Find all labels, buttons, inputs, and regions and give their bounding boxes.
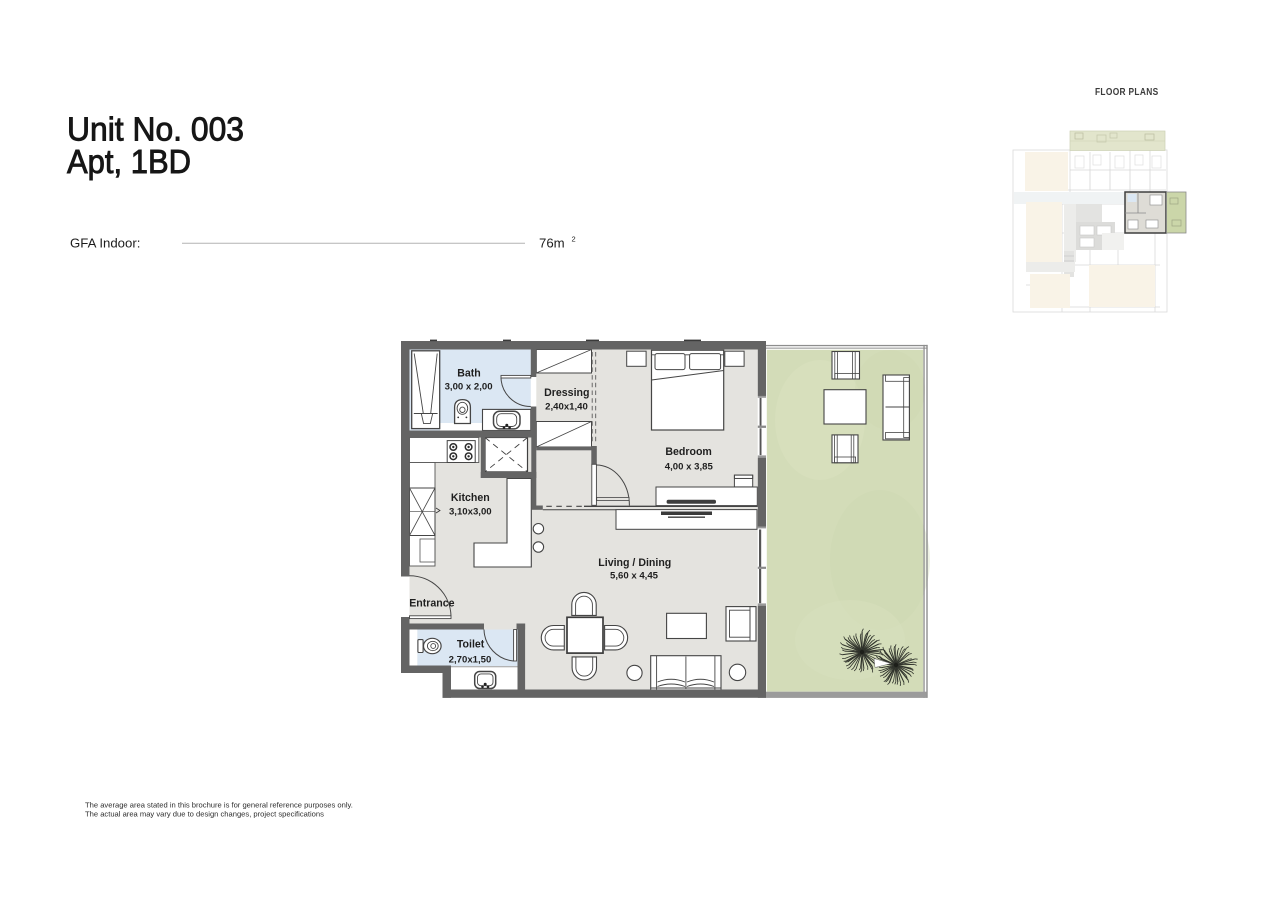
svg-text:Bath: Bath (457, 367, 481, 379)
svg-text:Unit No. 003: Unit No. 003 (67, 111, 244, 148)
svg-text:2,40x1,40: 2,40x1,40 (545, 402, 588, 413)
svg-text:The actual area may vary due t: The actual area may vary due to design c… (85, 810, 324, 819)
svg-text:Bedroom: Bedroom (665, 446, 712, 458)
svg-text:Apt, 1BD: Apt, 1BD (67, 143, 191, 180)
svg-text:2,70x1,50: 2,70x1,50 (449, 655, 492, 666)
svg-text:GFA Indoor:: GFA Indoor: (70, 236, 140, 251)
svg-text:2: 2 (572, 235, 576, 244)
svg-text:Entrance: Entrance (409, 597, 454, 609)
svg-text:3,10x3,00: 3,10x3,00 (449, 507, 492, 518)
svg-text:The average area stated in thi: The average area stated in this brochure… (85, 801, 353, 810)
svg-text:Kitchen: Kitchen (451, 492, 490, 504)
svg-text:5,60 x 4,45: 5,60 x 4,45 (610, 571, 659, 582)
svg-text:Toilet: Toilet (457, 638, 485, 650)
svg-text:Dressing: Dressing (544, 387, 589, 399)
svg-text:FLOOR PLANS: FLOOR PLANS (1095, 87, 1159, 98)
svg-text:Living / Dining: Living / Dining (598, 557, 671, 569)
svg-text:76m: 76m (539, 236, 565, 251)
svg-text:4,00 x 3,85: 4,00 x 3,85 (665, 461, 714, 472)
svg-text:3,00 x 2,00: 3,00 x 2,00 (445, 381, 493, 392)
